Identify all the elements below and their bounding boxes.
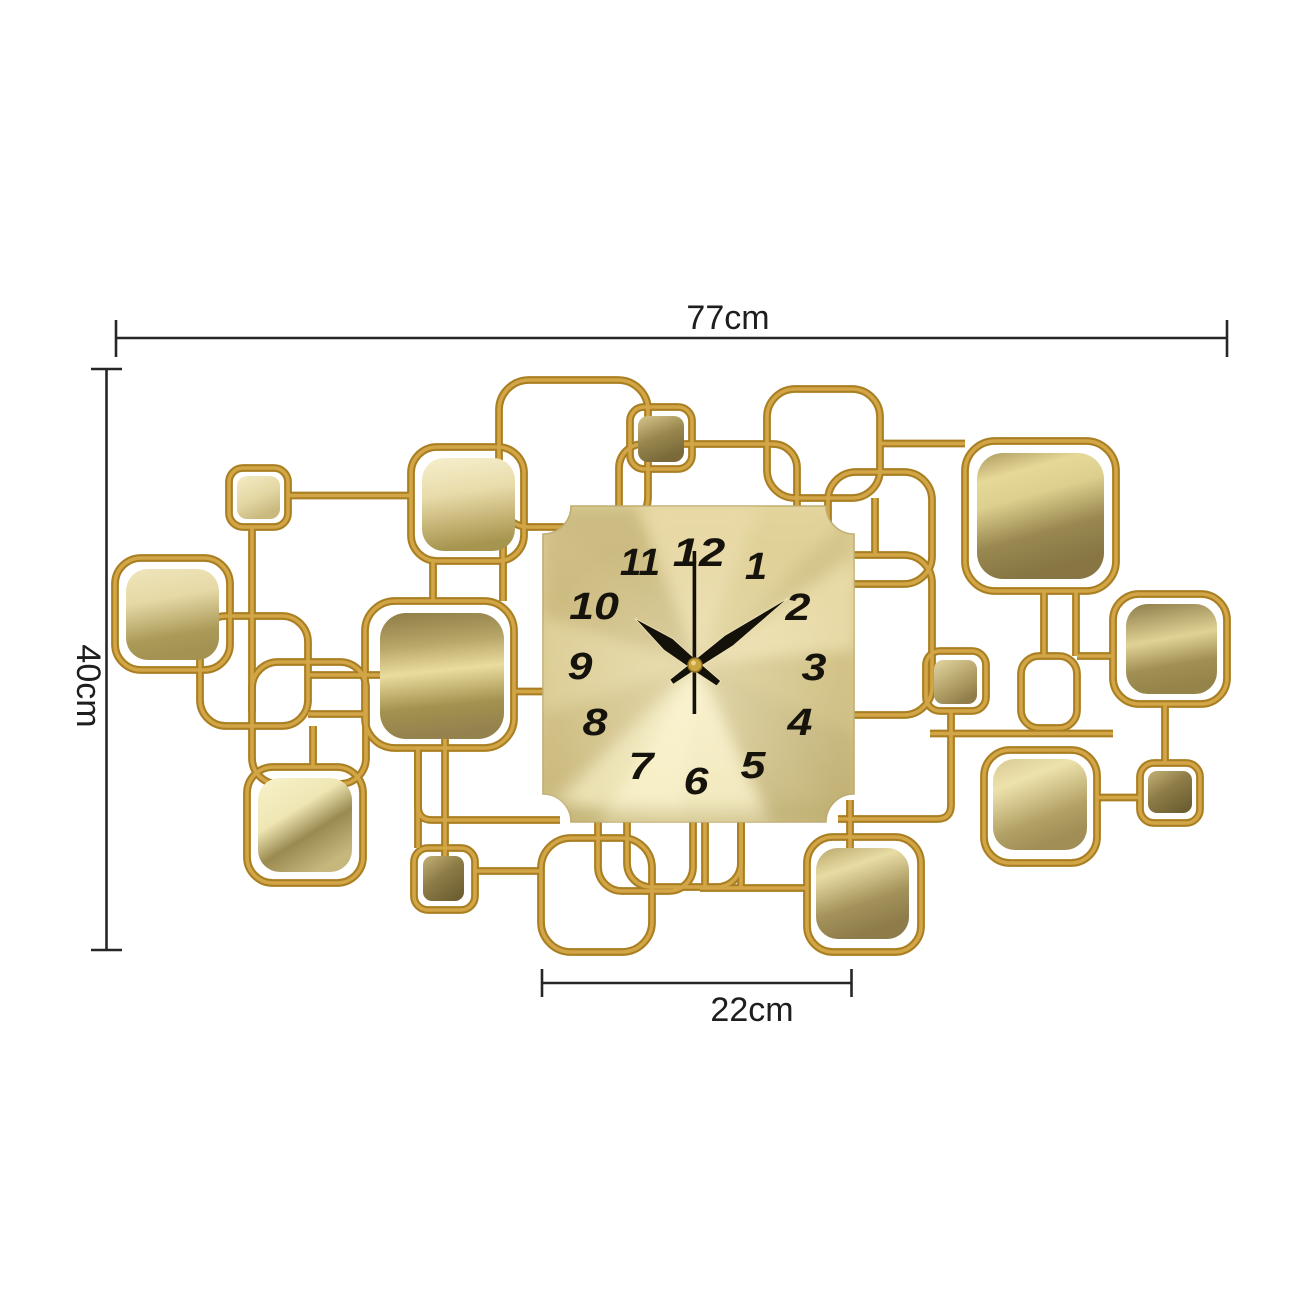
svg-text:7: 7 [629,744,656,787]
svg-text:5: 5 [741,743,767,786]
svg-text:22cm: 22cm [710,991,793,1029]
svg-text:9: 9 [568,644,593,687]
svg-text:3: 3 [802,645,827,688]
svg-text:11: 11 [620,541,660,584]
svg-text:8: 8 [583,700,609,743]
svg-text:12: 12 [673,530,725,575]
svg-text:6: 6 [684,759,710,802]
svg-text:1: 1 [745,546,767,588]
svg-text:10: 10 [569,584,619,627]
svg-text:2: 2 [784,585,810,628]
svg-text:77cm: 77cm [686,299,769,337]
svg-text:4: 4 [786,700,812,743]
svg-text:40cm: 40cm [69,644,107,727]
